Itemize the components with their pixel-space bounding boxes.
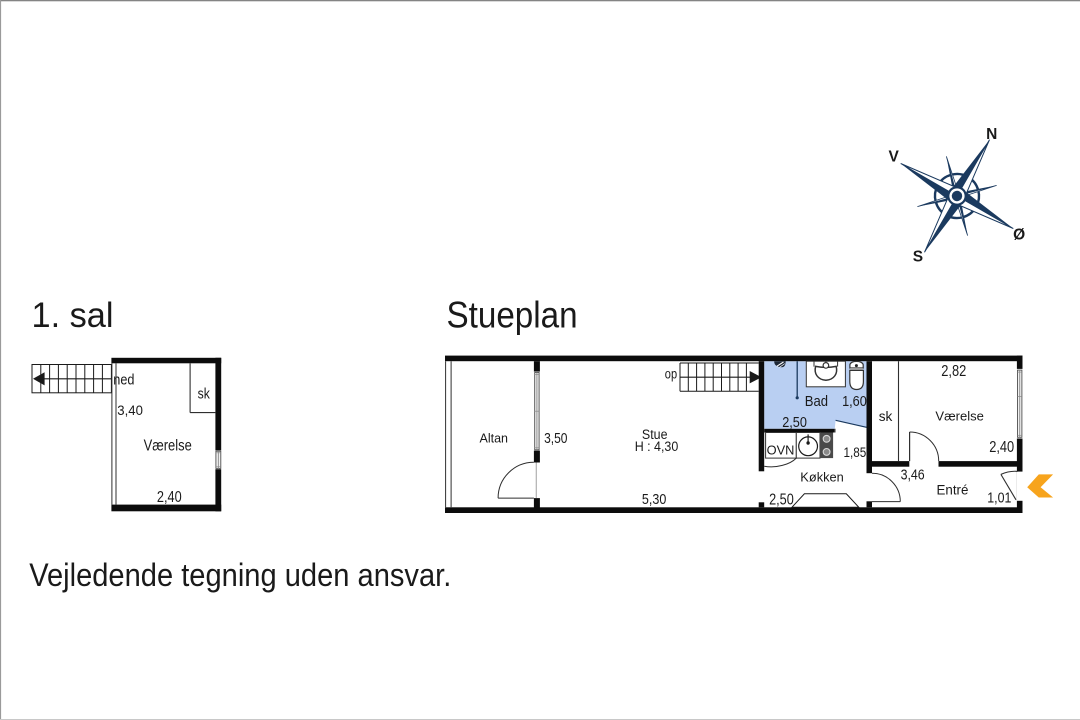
svg-text:2,40: 2,40 — [989, 439, 1014, 456]
svg-text:5,30: 5,30 — [642, 491, 666, 508]
svg-text:2,50: 2,50 — [769, 491, 794, 508]
svg-text:op: op — [665, 366, 677, 381]
svg-text:Bad: Bad — [805, 393, 828, 410]
svg-text:sk: sk — [879, 408, 894, 424]
svg-text:N: N — [986, 126, 997, 143]
svg-text:H : 4,30: H : 4,30 — [635, 439, 679, 454]
svg-text:1. sal: 1. sal — [32, 295, 114, 335]
svg-text:OVN: OVN — [767, 442, 795, 457]
svg-text:Entré: Entré — [937, 482, 969, 497]
svg-text:Værelse: Værelse — [935, 409, 984, 423]
svg-text:3,40: 3,40 — [117, 402, 143, 418]
svg-text:Ø: Ø — [1013, 226, 1025, 243]
svg-text:Værelse: Værelse — [144, 438, 192, 455]
svg-text:1,85: 1,85 — [844, 444, 867, 460]
svg-text:V: V — [889, 148, 900, 165]
svg-text:Køkken: Køkken — [800, 469, 844, 484]
svg-text:sk: sk — [198, 386, 211, 403]
svg-text:S: S — [913, 248, 923, 265]
svg-text:Vejledende tegning uden ansvar: Vejledende tegning uden ansvar. — [29, 557, 451, 593]
svg-text:Altan: Altan — [480, 431, 509, 446]
svg-text:2,50: 2,50 — [782, 415, 807, 431]
svg-text:3,46: 3,46 — [901, 468, 925, 484]
svg-text:1,01: 1,01 — [987, 490, 1011, 506]
svg-text:3,50: 3,50 — [544, 431, 567, 447]
svg-text:2,82: 2,82 — [941, 363, 966, 380]
svg-text:1,60: 1,60 — [842, 394, 867, 410]
svg-text:Stueplan: Stueplan — [447, 293, 578, 335]
svg-text:ned: ned — [113, 372, 134, 389]
svg-text:2,40: 2,40 — [157, 489, 182, 506]
